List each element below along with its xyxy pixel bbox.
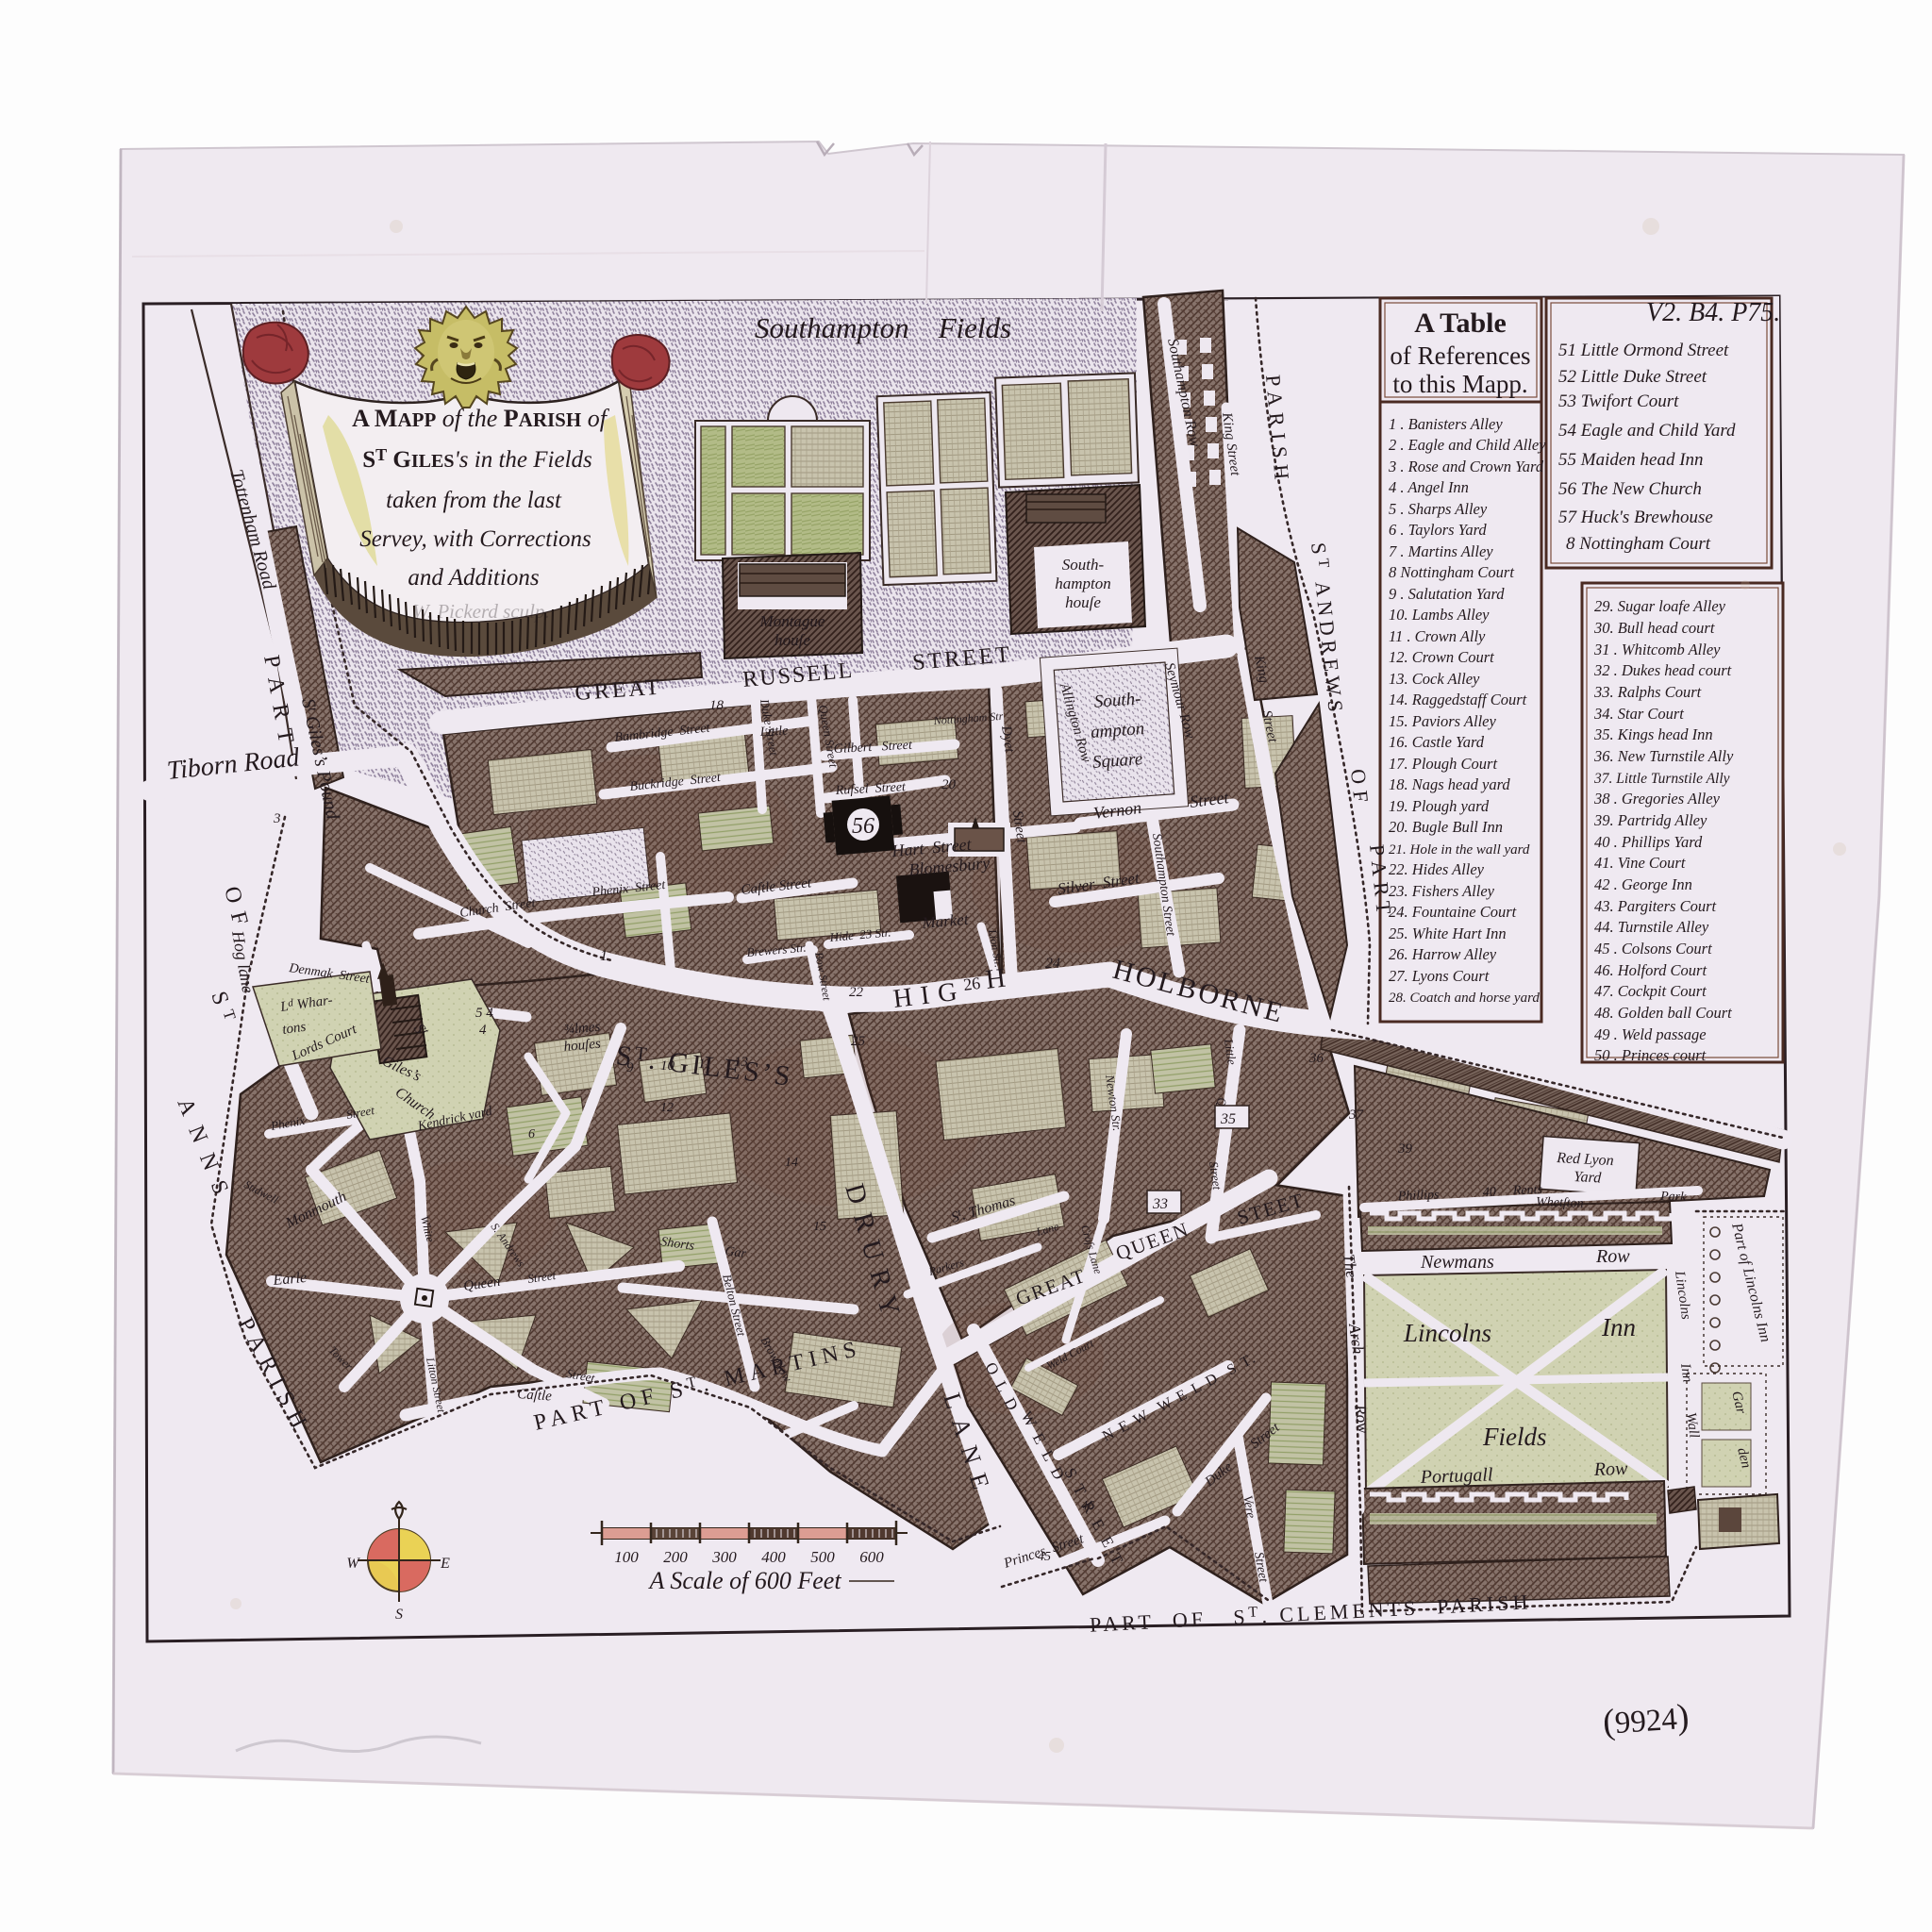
svg-text:12: 12 (660, 1101, 674, 1115)
svg-text:33: 33 (1152, 1196, 1168, 1212)
svg-text:South-: South- (1062, 556, 1105, 574)
svg-text:23. Fishers Alley: 23. Fishers Alley (1389, 882, 1495, 900)
svg-text:Lincolns: Lincolns (1403, 1319, 1491, 1347)
svg-text:20. Bugle Bull Inn: 20. Bugle Bull Inn (1389, 818, 1503, 836)
svg-text:Newmans: Newmans (1420, 1252, 1494, 1273)
svg-text:43. Pargiters Court: 43. Pargiters Court (1594, 897, 1717, 915)
svg-text:South-: South- (1093, 689, 1141, 711)
svg-text:18. Nags head yard: 18. Nags head yard (1389, 775, 1510, 793)
svg-text:The: The (1340, 1253, 1360, 1279)
svg-text:Phillips: Phillips (1397, 1188, 1441, 1204)
svg-text:46: 46 (1081, 1499, 1094, 1513)
svg-text:26. Harrow Alley: 26. Harrow Alley (1389, 945, 1497, 963)
svg-text:7 . Martins Alley: 7 . Martins Alley (1389, 542, 1493, 560)
svg-text:44. Turnstile Alley: 44. Turnstile Alley (1594, 918, 1709, 936)
svg-text:6: 6 (528, 1127, 535, 1141)
svg-text:37: 37 (1348, 1108, 1365, 1123)
svg-text:houſe: houſe (774, 631, 810, 649)
svg-text:500: 500 (810, 1548, 835, 1566)
svg-text:25: 25 (851, 1034, 866, 1049)
svg-text:100: 100 (614, 1548, 639, 1566)
svg-text:8 Nottingham Court: 8 Nottingham Court (1389, 563, 1514, 581)
svg-text:3: 3 (273, 811, 281, 826)
svg-text:¾lmes: ¾lmes (563, 1020, 601, 1038)
svg-text:1: 1 (600, 948, 608, 964)
svg-text:21. Hole in the wall yard: 21. Hole in the wall yard (1389, 842, 1530, 858)
svg-text:15. Paviors Alley: 15. Paviors Alley (1389, 712, 1496, 730)
svg-text:22. Hides Alley: 22. Hides Alley (1389, 860, 1485, 878)
svg-text:47. Cockpit Court: 47. Cockpit Court (1594, 982, 1707, 1000)
svg-text:houſes: houſes (563, 1037, 602, 1055)
svg-text:200: 200 (663, 1548, 688, 1566)
svg-text:Inn: Inn (1601, 1313, 1636, 1341)
svg-text:11: 11 (698, 1057, 711, 1072)
svg-text:Yard: Yard (1574, 1169, 1603, 1187)
svg-text:S: S (395, 1607, 403, 1623)
svg-text:27. Lyons Court: 27. Lyons Court (1389, 967, 1490, 985)
svg-text:Montague: Montague (759, 612, 825, 630)
svg-text:to this Mapp.: to this Mapp. (1392, 370, 1527, 398)
svg-text:28. Coatch and horse yard: 28. Coatch and horse yard (1389, 991, 1540, 1006)
svg-text:14: 14 (785, 1156, 798, 1170)
svg-text:9: 9 (626, 1060, 634, 1075)
svg-text:25. White Hart Inn: 25. White Hart Inn (1389, 924, 1507, 942)
svg-text:50 . Princes court: 50 . Princes court (1594, 1046, 1707, 1064)
svg-text:Servey, with Corrections: Servey, with Corrections (359, 526, 591, 552)
svg-text:19. Plough yard: 19. Plough yard (1389, 797, 1490, 815)
svg-text:5 . Sharps Alley: 5 . Sharps Alley (1389, 500, 1488, 518)
svg-text:300: 300 (711, 1548, 737, 1566)
svg-text:Caſtle: Caſtle (517, 1387, 553, 1405)
svg-text:48. Golden ball Court: 48. Golden ball Court (1594, 1004, 1732, 1022)
svg-text:11 . Crown Ally: 11 . Crown Ally (1389, 627, 1486, 645)
svg-text:Earle: Earle (272, 1270, 308, 1289)
svg-text:W: W (346, 1556, 360, 1572)
svg-text:51 Little Ormond Street: 51 Little Ormond Street (1558, 341, 1729, 360)
svg-text:29. Sugar loafe Alley: 29. Sugar loafe Alley (1594, 597, 1726, 615)
svg-text:OF: OF (1346, 768, 1374, 810)
svg-text:4 . Angel Inn: 4 . Angel Inn (1389, 478, 1469, 496)
svg-text:A Table: A Table (1414, 308, 1507, 339)
svg-text:52 Little Duke Street: 52 Little Duke Street (1558, 367, 1707, 387)
svg-text:2 . Eagle and Child Alley: 2 . Eagle and Child Alley (1389, 436, 1546, 454)
svg-text:24: 24 (1045, 956, 1060, 972)
svg-text:Portugall: Portugall (1419, 1464, 1493, 1488)
svg-text:Square: Square (1091, 749, 1142, 773)
svg-text:35. Kings head Inn: 35. Kings head Inn (1593, 725, 1713, 743)
svg-text:56: 56 (852, 814, 874, 839)
svg-text:13. Cock Alley: 13. Cock Alley (1389, 670, 1480, 688)
svg-text:26: 26 (962, 974, 981, 994)
svg-text:hampton: hampton (1055, 575, 1111, 592)
svg-text:and Additions: and Additions (408, 565, 539, 591)
svg-text:42 . George Inn: 42 . George Inn (1594, 875, 1692, 893)
svg-text:3 . Rose and Crown Yard: 3 . Rose and Crown Yard (1388, 458, 1544, 475)
svg-text:400: 400 (761, 1548, 786, 1566)
svg-text:36: 36 (1308, 1051, 1324, 1066)
svg-text:34. Star Court: 34. Star Court (1593, 705, 1684, 723)
svg-text:houſe: houſe (1065, 593, 1101, 611)
svg-text:A MAPP of the PARISH of: A MAPP of the PARISH of (352, 405, 610, 432)
svg-text:56 The New Church: 56 The New Church (1558, 479, 1702, 499)
svg-text:A Scale of 600 Feet: A Scale of 600 Feet (647, 1567, 841, 1594)
svg-text:22: 22 (849, 985, 864, 1000)
svg-text:E: E (440, 1556, 450, 1572)
svg-text:30. Bull head court: 30. Bull head court (1593, 619, 1715, 637)
svg-text:6 . Taylors Yard: 6 . Taylors Yard (1389, 521, 1487, 539)
svg-text:4: 4 (479, 1023, 487, 1038)
svg-text:13: 13 (734, 1055, 748, 1070)
svg-text:36. New Turnstile Ally: 36. New Turnstile Ally (1593, 747, 1734, 765)
svg-text:5 4: 5 4 (475, 1006, 493, 1021)
svg-text:8 Nottingham Court: 8 Nottingham Court (1566, 534, 1711, 554)
svg-text:40 . Phillips Yard: 40 . Phillips Yard (1594, 833, 1703, 851)
svg-text:53 Twifort Court: 53 Twifort Court (1558, 391, 1679, 411)
svg-text:20: 20 (941, 777, 957, 792)
svg-text:10: 10 (660, 1058, 675, 1074)
svg-text:45 . Colsons Court: 45 . Colsons Court (1594, 940, 1712, 958)
svg-text:1 . Banisters Alley: 1 . Banisters Alley (1389, 415, 1503, 433)
svg-text:35: 35 (1220, 1111, 1236, 1127)
svg-text:ampton: ampton (1090, 719, 1144, 742)
svg-text:45: 45 (1038, 1550, 1051, 1564)
svg-text:38 . Gregories Alley: 38 . Gregories Alley (1593, 790, 1721, 808)
svg-text:Gar: Gar (724, 1244, 747, 1261)
svg-text:Park: Park (1659, 1190, 1688, 1205)
svg-text:Fields: Fields (1482, 1423, 1547, 1451)
svg-text:10. Lambs Alley: 10. Lambs Alley (1389, 606, 1490, 624)
svg-text:37. Little Turnstile Ally: 37. Little Turnstile Ally (1593, 771, 1730, 787)
svg-text:31 . Whitcomb Alley: 31 . Whitcomb Alley (1593, 641, 1721, 658)
svg-text:16. Castle Yard: 16. Castle Yard (1389, 733, 1485, 751)
svg-text:600: 600 (859, 1548, 884, 1566)
svg-text:18: 18 (709, 698, 724, 713)
svg-text:46. Holford Court: 46. Holford Court (1594, 961, 1707, 979)
svg-text:W. Pickerd sculp.: W. Pickerd sculp. (412, 600, 549, 623)
svg-text:Inn: Inn (1677, 1361, 1695, 1383)
svg-text:57 Huck's Brewhouse: 57 Huck's Brewhouse (1558, 508, 1713, 527)
svg-text:40: 40 (1483, 1186, 1497, 1200)
svg-text:Row: Row (1595, 1246, 1630, 1267)
svg-text:39: 39 (1397, 1141, 1413, 1157)
svg-text:39. Partridg Alley: 39. Partridg Alley (1593, 811, 1707, 829)
svg-text:Row: Row (1592, 1458, 1628, 1480)
svg-text:ST GILES's in the Fields: ST GILES's in the Fields (362, 445, 592, 473)
svg-text:taken from the last: taken from the last (386, 488, 562, 513)
svg-text:17. Plough Court: 17. Plough Court (1389, 755, 1497, 773)
svg-text:9 . Salutation Yard: 9 . Salutation Yard (1389, 585, 1505, 603)
svg-text:Southampton Fields: Southampton Fields (755, 311, 1011, 344)
svg-text:of References: of References (1390, 341, 1530, 370)
svg-text:Red Lyon: Red Lyon (1556, 1150, 1614, 1169)
svg-text:33. Ralphs Court: 33. Ralphs Court (1593, 683, 1702, 701)
svg-text:41. Vine Court: 41. Vine Court (1594, 854, 1686, 872)
svg-text:15: 15 (813, 1220, 826, 1234)
svg-text:V2. B4. P75.: V2. B4. P75. (1646, 298, 1780, 327)
svg-text:55 Maiden head Inn: 55 Maiden head Inn (1558, 450, 1704, 470)
svg-text:Whetſton: Whetſton (1536, 1195, 1584, 1211)
svg-text:14. Raggedstaff Court: 14. Raggedstaff Court (1389, 691, 1527, 708)
svg-text:54 Eagle and Child Yard: 54 Eagle and Child Yard (1558, 421, 1736, 441)
svg-text:24. Fountaine Court: 24. Fountaine Court (1389, 903, 1517, 921)
svg-text:Rents: Rents (1512, 1183, 1543, 1198)
svg-text:12. Crown Court: 12. Crown Court (1389, 648, 1494, 666)
svg-text:32 . Dukes head court: 32 . Dukes head court (1593, 661, 1732, 679)
svg-text:49 . Weld passage: 49 . Weld passage (1594, 1025, 1707, 1043)
